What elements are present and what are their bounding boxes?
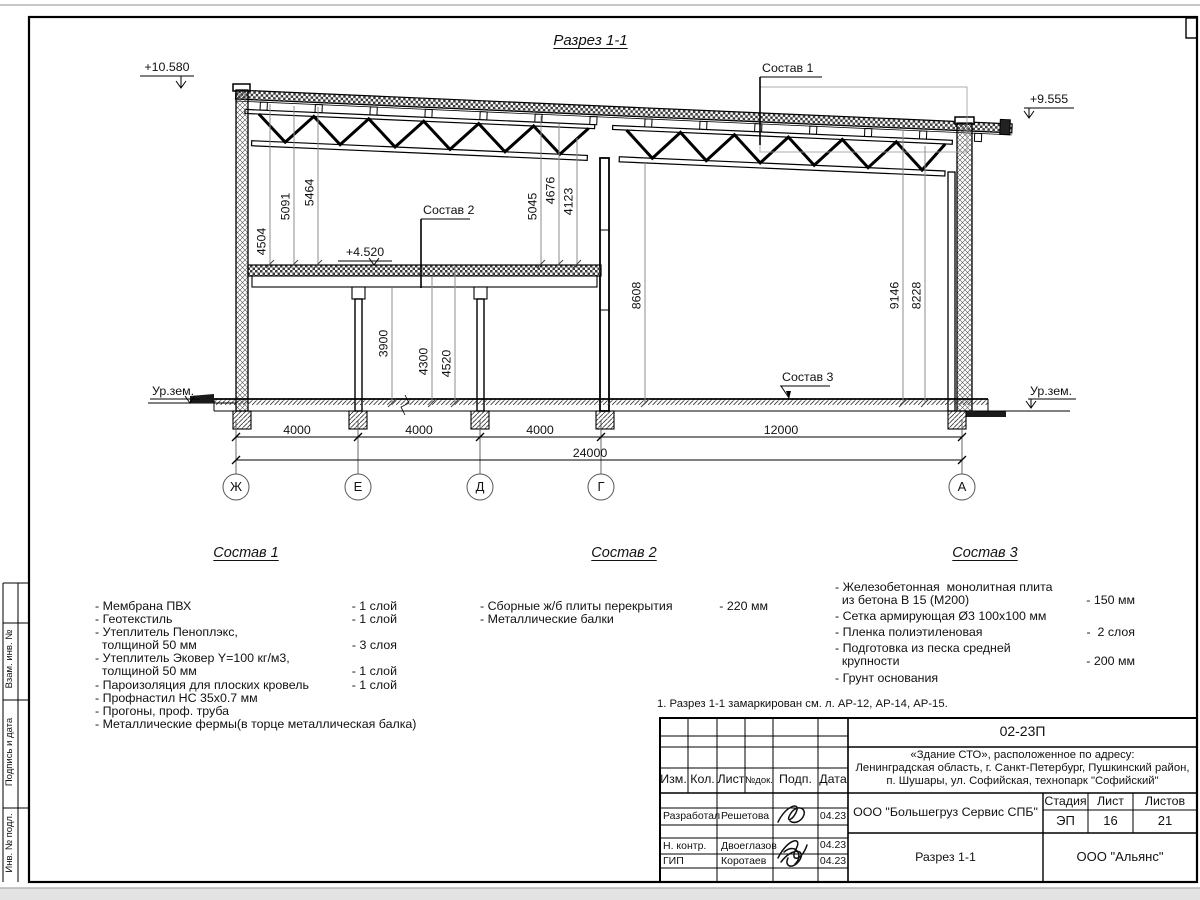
tb-date-2: 04.23: [818, 840, 848, 851]
foundation-pads: [233, 411, 966, 429]
column-d: [477, 299, 484, 411]
dim-4000-3: 4000: [510, 424, 570, 437]
dim-9146: 9146: [888, 266, 901, 326]
dim-4300: 4300: [417, 332, 430, 392]
tb-doc-number: 02-23П: [848, 724, 1197, 739]
tb-col-data: Дата: [818, 773, 848, 786]
middle-column: [600, 158, 609, 411]
dim-3900: 3900: [377, 314, 390, 374]
ground-level-left: Ур.зем.: [152, 385, 194, 398]
tb-date-3: 04.23: [818, 856, 848, 867]
roof-edge-cap: [1000, 119, 1011, 134]
dim-5464: 5464: [303, 163, 316, 223]
tb-stage-value: ЭП: [1043, 814, 1088, 828]
dim-5045: 5045: [526, 177, 539, 237]
tb-col-list: Лист: [717, 773, 745, 786]
tb-stage-label: Стадия: [1043, 795, 1088, 808]
composition-1-title: Состав 1: [95, 545, 397, 561]
dim-4520: 4520: [440, 334, 453, 394]
truss1-bottom-chord: [251, 141, 587, 161]
axis-zh: Ж: [223, 480, 249, 494]
dim-8228: 8228: [910, 266, 923, 326]
tb-sheets-label: Листов: [1133, 795, 1197, 808]
dim-12000: 12000: [746, 424, 816, 437]
tb-role-2: Н. контр.: [663, 841, 706, 852]
axis-g: Г: [588, 480, 614, 494]
composition-3: Состав 3 - Железобетонная монолитная пли…: [835, 545, 1135, 685]
tb-company: ООО "Большегруз Сервис СПБ": [848, 806, 1043, 819]
axis-e: Е: [345, 480, 371, 494]
dim-8608: 8608: [630, 266, 643, 326]
axis-a: А: [949, 480, 975, 494]
tb-name-3: Коротаев: [721, 856, 766, 867]
ground-level-right: Ур.зем.: [1030, 385, 1072, 398]
composition-3-title: Состав 3: [835, 545, 1135, 561]
tb-date-1: 04.23: [818, 811, 848, 822]
callout-comp2: Состав 2: [423, 204, 474, 217]
roof-assembly: [234, 86, 1013, 179]
corner-stamp-box: [1186, 18, 1197, 38]
left-wall: [233, 84, 250, 411]
tb-sheets-value: 21: [1133, 814, 1197, 828]
elevation-roof-right: +9.555: [1024, 93, 1074, 106]
tb-address-3: п. Шушары, ул. Софийская, технопарк "Соф…: [848, 776, 1197, 788]
section-title: Разрез 1-1: [528, 33, 653, 49]
drawing-note: 1. Разрез 1-1 замаркирован см. л. АР-12,…: [657, 699, 948, 711]
tb-address-2: Ленинградская область, г. Санкт-Петербур…: [848, 763, 1197, 775]
tb-col-ndok: №док.: [745, 776, 773, 786]
dim-4123: 4123: [562, 172, 575, 232]
signatures: [778, 806, 807, 866]
drawing-sheet: Разрез 1-1 +10.580 +9.555 +4.520 Ур.зем.…: [0, 0, 1200, 900]
dim-4000-2: 4000: [389, 424, 449, 437]
composition-2-title: Состав 2: [480, 545, 768, 561]
tb-drawing-name: Разрез 1-1: [848, 851, 1043, 864]
composition-1: Состав 1 - Мембрана ПВХ- 1 слой - Геотек…: [95, 545, 397, 731]
stamp-podpis-data: Подпись и дата: [5, 701, 15, 803]
axis-d: Д: [467, 480, 493, 494]
tb-sheet-value: 16: [1088, 814, 1133, 828]
tb-name-1: Решетова: [721, 811, 769, 822]
composition-2: Состав 2 - Сборные ж/б плиты перекрытия-…: [480, 545, 768, 626]
dim-24000: 24000: [555, 447, 625, 460]
tb-col-kol: Кол.: [688, 773, 717, 786]
tb-org: ООО "Альянс": [1043, 850, 1197, 864]
tb-col-izm: Изм.: [659, 773, 688, 786]
dim-5091: 5091: [279, 177, 292, 237]
elevation-roof-left: +10.580: [140, 61, 194, 74]
sheet-bottom-edge: [0, 888, 1200, 900]
right-wall: [948, 117, 974, 411]
column-e: [355, 299, 362, 411]
tb-sheet-label: Лист: [1088, 795, 1133, 808]
stamp-inv-podl: Инв. № подл.: [5, 807, 15, 879]
tb-role-1: Разработал: [663, 811, 720, 822]
stamp-vzam-inv: Взам. инв. №: [5, 621, 15, 697]
truss2-bottom-chord: [619, 157, 945, 176]
dim-4676: 4676: [544, 161, 557, 221]
tb-name-2: Двоеглазов: [721, 841, 777, 852]
elevation-floor: +4.520: [338, 246, 392, 259]
tb-col-podp: Подп.: [773, 773, 818, 786]
tb-address-1: «Здание СТО», расположенное по адресу:: [848, 750, 1197, 762]
callout-comp1: Состав 1: [762, 62, 813, 75]
tb-role-3: ГИП: [663, 856, 684, 867]
dim-4504: 4504: [255, 212, 268, 272]
right-apron: [966, 411, 1006, 417]
dim-4000-1: 4000: [267, 424, 327, 437]
callout-comp3: Состав 3: [782, 371, 833, 384]
